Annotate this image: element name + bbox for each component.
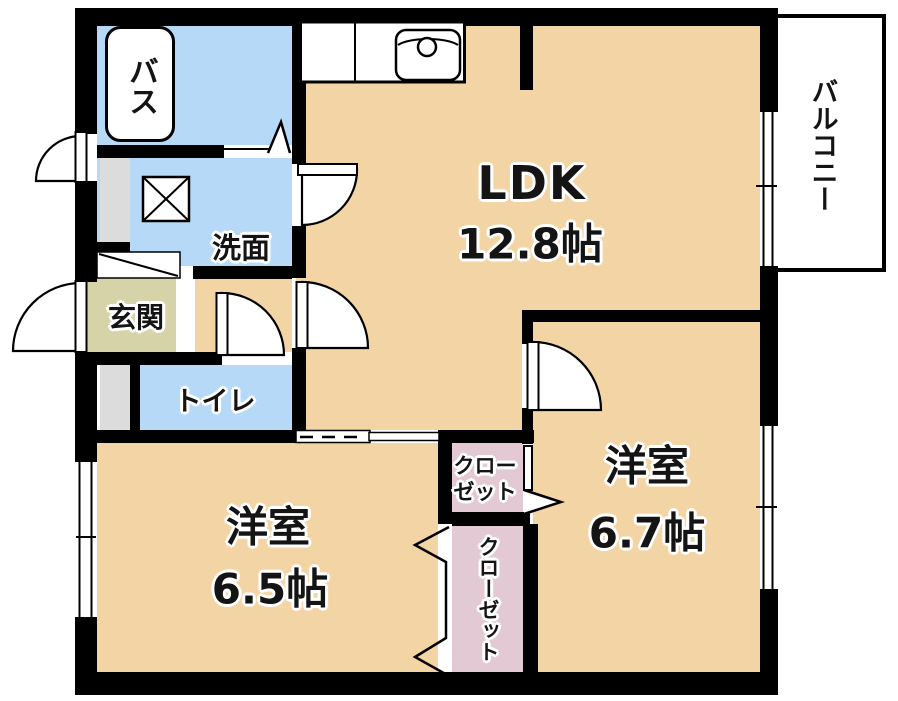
entrance-diagonal [97,252,180,278]
window-left-glazing [76,462,96,617]
toilet-door-swing [217,293,285,355]
western-room-left-label: 洋室 [226,494,310,555]
window-room-right-glazing [756,426,777,589]
window-ldk-glazing [756,112,777,266]
balcony-label: バルコニー [803,78,842,213]
ldk-label: LDK [477,156,586,210]
kitchen-sink-icon [396,30,460,80]
bath-folding-door [224,122,292,157]
western-room-right-label: 洋室 [605,433,689,494]
bath-label: バス [118,56,162,116]
ldk-size: 12.8帖 [457,211,603,272]
closet-lower-door [415,524,452,676]
entrance-door-swing [13,281,87,352]
closet-lower-label: クローゼット [473,536,503,662]
floor-plan: バス 洗面 玄関 トイレ LDK 12.8帖 バルコニー 洋室 6.7帖 洋室 … [0,0,898,701]
sliding-door [296,431,439,443]
closet-upper-label-line2: ゼット [454,480,517,504]
washing-machine-pan-icon [143,177,189,221]
toilet-label: トイレ [175,380,256,419]
hall-ldk-door-swing [297,282,369,348]
service-door-swing [36,132,87,182]
washroom-label: 洗面 [212,225,270,267]
entrance-label: 玄関 [108,296,164,336]
closet-upper-label: クロー ゼット [454,453,517,506]
closet-upper-door [523,445,561,514]
washroom-door-swing [298,164,357,225]
western-room-left-size: 6.5帖 [212,556,328,617]
room-right-door-swing [528,342,602,410]
western-room-right-size: 6.7帖 [589,500,705,561]
closet-upper-label-line1: クロー [454,454,517,478]
